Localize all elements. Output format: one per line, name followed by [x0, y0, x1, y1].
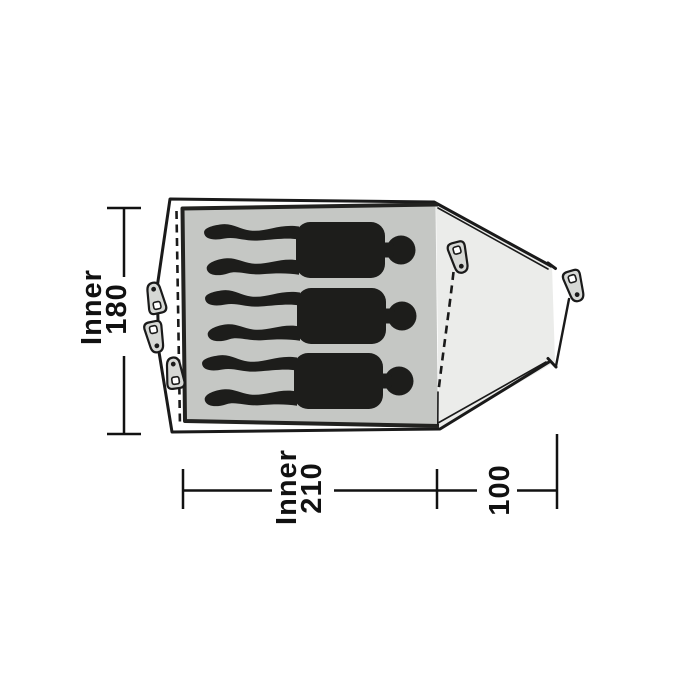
- dim-inner-length-value: 210: [296, 462, 328, 513]
- tent-peg-icon: [562, 269, 588, 304]
- dim-porch-depth-value: 100: [484, 464, 516, 515]
- dim-inner-width: Inner 180: [76, 208, 141, 434]
- tent-floorplan-diagram: Inner 180 Inner 210 100: [0, 0, 700, 700]
- guy-line: [556, 299, 569, 366]
- dim-inner-width-value: 180: [101, 283, 133, 334]
- tent-floorplan-page: Inner 180 Inner 210 100: [0, 0, 700, 700]
- door-dashed-left: [177, 211, 181, 427]
- tent-peg-icon: [164, 356, 185, 389]
- tent-peg-icon: [143, 320, 166, 354]
- dim-porch-depth: 100: [484, 464, 516, 515]
- tent-peg-icon: [144, 281, 167, 315]
